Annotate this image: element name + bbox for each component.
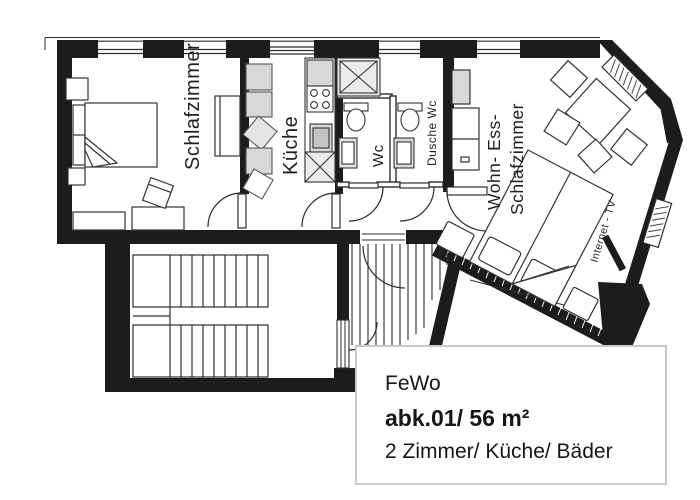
- bench: [246, 64, 272, 90]
- toilet: [344, 103, 368, 131]
- shelf: [452, 70, 470, 104]
- entrance-staircase: [352, 244, 447, 345]
- apartment-rooms: 2 Zimmer/ Küche/ Bäder: [385, 440, 665, 464]
- bench: [246, 92, 272, 117]
- chair: [143, 178, 174, 209]
- chair: [578, 139, 612, 173]
- apartment-id-size: abk.01/ 56 m²: [385, 405, 665, 432]
- label-wc: Wc: [370, 144, 387, 167]
- nightstand: [68, 168, 85, 185]
- counter: [307, 60, 333, 86]
- shower-tray: [337, 58, 380, 96]
- label-living-line2: Schlafzimmer: [507, 103, 527, 215]
- label-bedroom: Schlafzimmer: [182, 43, 204, 170]
- table: [246, 148, 272, 174]
- stair-window-slats: [337, 320, 349, 368]
- chair: [551, 61, 588, 98]
- label-shower-wc: Dusche Wc: [425, 100, 439, 166]
- label-living-line1: Wohn- Ess-: [484, 114, 504, 210]
- label-kitchen: Küche: [280, 116, 302, 175]
- chair: [611, 129, 647, 165]
- stove: [307, 86, 333, 112]
- apartment-type: FeWo: [385, 372, 665, 396]
- washbasin: [394, 138, 414, 168]
- toilet: [398, 103, 422, 131]
- floor-plan-page: Schlafzimmer Küche Wc Dusche Wc Wohn- Es…: [0, 0, 700, 500]
- nightstand: [66, 78, 88, 100]
- double-bed: [73, 103, 157, 167]
- wardrobe: [215, 96, 240, 156]
- sideboard: [132, 207, 184, 230]
- appliance: [305, 152, 335, 182]
- main-staircase: [133, 255, 268, 377]
- apartment-info-box: FeWo abk.01/ 56 m² 2 Zimmer/ Küche/ Bäde…: [355, 345, 667, 485]
- dresser: [73, 212, 125, 230]
- kitchen-counter: [305, 58, 335, 182]
- cabinet: [452, 108, 479, 170]
- sink: [310, 124, 332, 152]
- washbasin: [339, 138, 357, 168]
